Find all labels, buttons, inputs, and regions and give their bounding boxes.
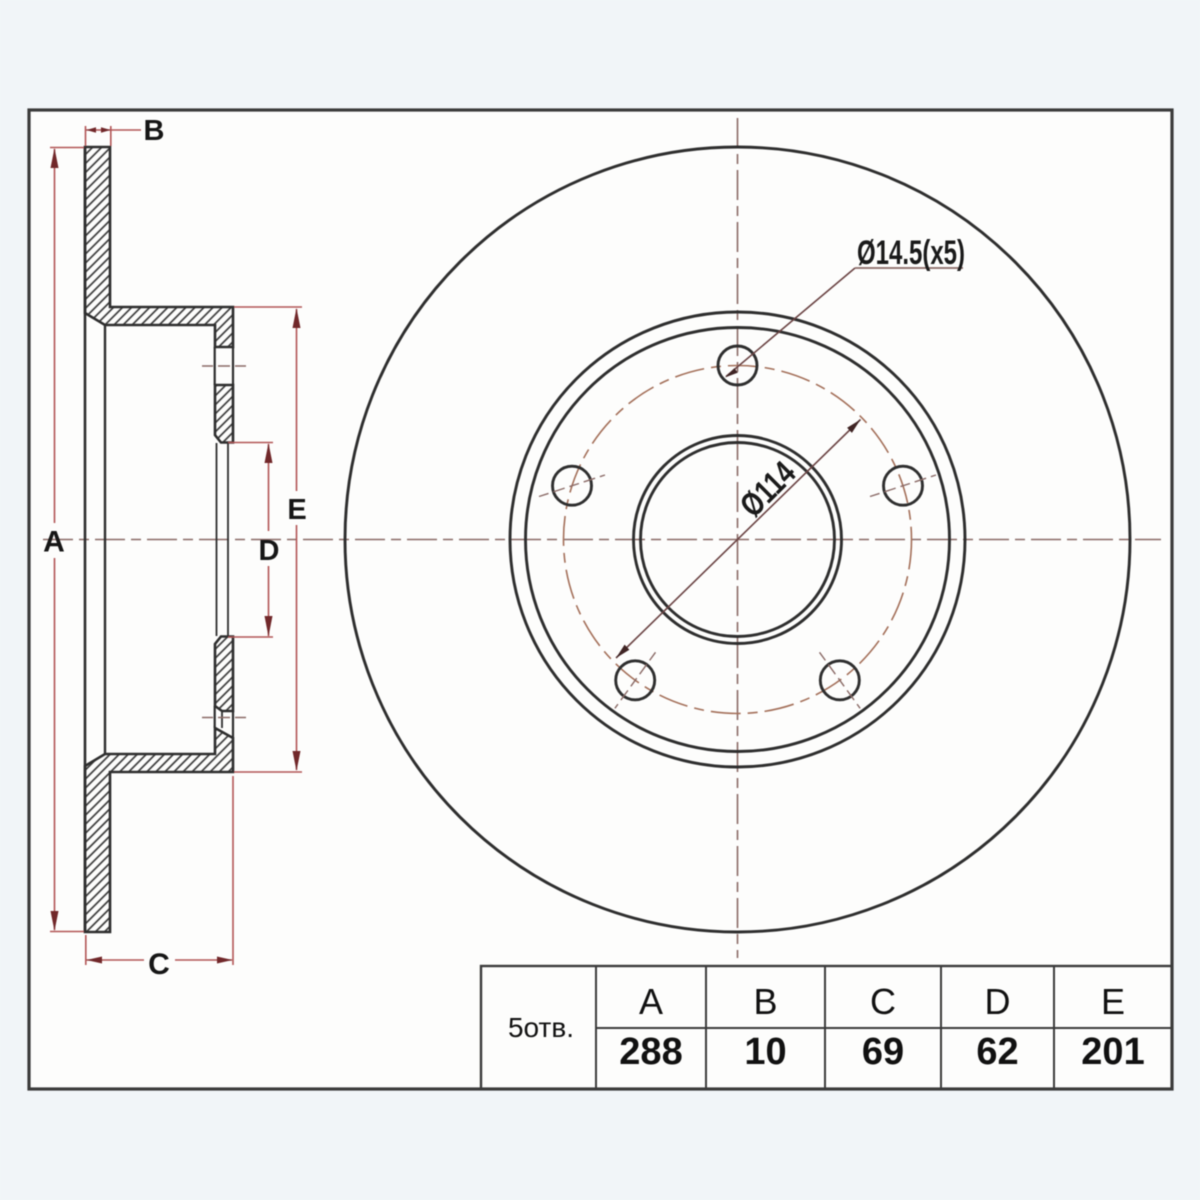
svg-text:201: 201 (1081, 1031, 1144, 1073)
svg-text:Ø14.5(x5): Ø14.5(x5) (857, 234, 965, 272)
svg-text:C: C (870, 981, 896, 1022)
svg-text:E: E (287, 494, 306, 526)
svg-text:D: D (259, 535, 280, 567)
svg-text:10: 10 (744, 1031, 786, 1073)
svg-text:A: A (639, 981, 663, 1022)
svg-text:288: 288 (619, 1031, 682, 1073)
svg-text:62: 62 (976, 1031, 1018, 1073)
svg-text:E: E (1101, 981, 1125, 1022)
svg-text:A: A (43, 526, 65, 559)
svg-text:B: B (144, 115, 165, 147)
svg-text:B: B (753, 981, 777, 1022)
svg-text:D: D (985, 981, 1011, 1022)
svg-text:5отв.: 5отв. (508, 1012, 574, 1043)
svg-text:C: C (148, 948, 170, 981)
svg-text:69: 69 (862, 1031, 904, 1073)
